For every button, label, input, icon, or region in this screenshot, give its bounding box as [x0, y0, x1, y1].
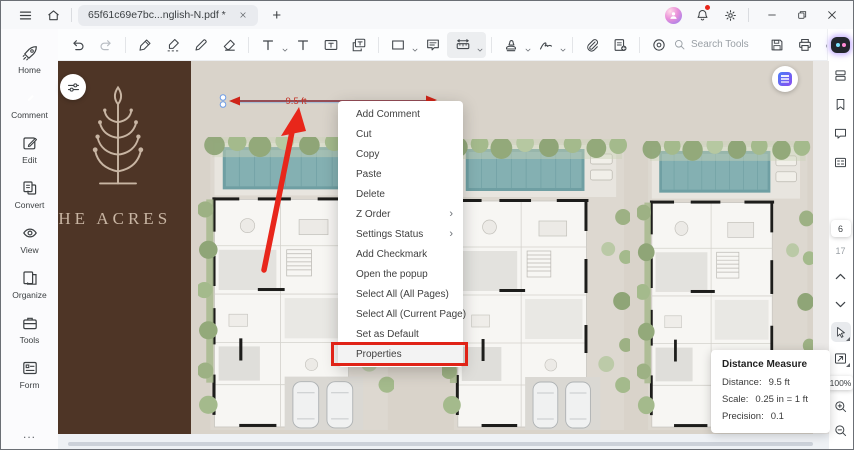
shape-tool[interactable] [384, 33, 419, 57]
signature-tool[interactable] [532, 33, 567, 57]
comment-icon [21, 89, 39, 107]
menu-item-z-order[interactable]: Z Order› [338, 204, 463, 224]
annotation-toolbar: Search Tools [58, 29, 829, 61]
menu-item-settings-status[interactable]: Settings Status› [338, 224, 463, 244]
new-tab-button[interactable]: + [268, 7, 286, 24]
menu-item-open-the-popup[interactable]: Open the popup [338, 264, 463, 284]
divider [748, 8, 749, 22]
chevron-down-icon[interactable] [411, 41, 419, 49]
convert-icon [21, 179, 39, 197]
measure-panel-title: Distance Measure [722, 359, 819, 370]
sidebar-item-form[interactable]: Form [4, 352, 56, 397]
form-icon [21, 359, 39, 377]
menu-item-set-as-default[interactable]: Set as Default [338, 324, 463, 344]
measure-tool-active[interactable] [447, 32, 486, 58]
horizontal-scrollbar[interactable] [68, 442, 813, 446]
add-file-comment-tool[interactable] [608, 33, 632, 57]
briefcase-icon [21, 314, 39, 332]
distance-measure-panel: Distance Measure Distance:9.5 ft Scale:0… [711, 350, 830, 433]
settings-gear-icon[interactable] [721, 6, 739, 24]
botanical-ornament [72, 73, 164, 193]
pages-icon [21, 269, 39, 287]
user-avatar[interactable] [665, 7, 682, 24]
highlight-tool[interactable] [133, 33, 157, 57]
stamp-tool[interactable] [497, 33, 532, 57]
titlebar: 65f61c69e7bc...nglish-N.pdf * + [1, 1, 853, 29]
close-button[interactable] [821, 6, 843, 24]
current-page-indicator[interactable]: 6 [831, 220, 851, 237]
annotation-options-button[interactable] [60, 74, 86, 100]
rocket-icon [21, 44, 39, 62]
underline-tool[interactable] [254, 33, 289, 57]
redo-button[interactable] [94, 33, 118, 57]
divider [71, 8, 72, 22]
menu-item-add-comment[interactable]: Add Comment [338, 104, 463, 124]
chevron-down-icon[interactable] [524, 41, 532, 49]
menu-item-select-all-current-page[interactable]: Select All (Current Page) [338, 304, 463, 324]
add-text-tool[interactable] [291, 33, 315, 57]
attachment-tool[interactable] [580, 33, 604, 57]
menu-item-select-all-all-pages[interactable]: Select All (All Pages) [338, 284, 463, 304]
eraser-tool[interactable] [217, 33, 241, 57]
eye-icon [21, 224, 39, 242]
ai-doc-icon [778, 72, 792, 86]
zoom-in-button[interactable] [831, 396, 851, 416]
chevron-down-icon[interactable] [559, 41, 567, 49]
show-annotations-tool[interactable] [647, 33, 671, 57]
sidebar-item-organize[interactable]: Organize [4, 262, 56, 307]
comments-panel-icon[interactable] [831, 123, 851, 143]
undo-button[interactable] [66, 33, 90, 57]
menu-item-delete[interactable]: Delete [338, 184, 463, 204]
sidebar-more-button[interactable]: ... [23, 427, 36, 441]
search-icon [673, 38, 686, 51]
sidebar-item-edit[interactable]: Edit [4, 127, 56, 172]
total-pages-label: 17 [835, 246, 845, 256]
print-button[interactable] [793, 33, 817, 57]
search-tools[interactable]: Search Tools [673, 38, 749, 51]
chevron-down-icon[interactable] [281, 41, 289, 49]
text-box-tool[interactable] [319, 33, 343, 57]
select-tool-button[interactable] [831, 322, 851, 342]
menu-item-properties[interactable]: Properties [338, 344, 463, 364]
tab-title: 65f61c69e7bc...nglish-N.pdf * [88, 9, 226, 21]
submenu-arrow-icon: › [449, 208, 453, 220]
text-callout-tool[interactable] [347, 33, 371, 57]
edit-icon [21, 134, 39, 152]
menu-icon[interactable] [16, 6, 34, 24]
fields-panel-icon[interactable] [831, 152, 851, 172]
sidebar-item-home[interactable]: Home [4, 37, 56, 82]
menu-item-paste[interactable]: Paste [338, 164, 463, 184]
sidebar-item-convert[interactable]: Convert [4, 172, 56, 217]
pencil-tool[interactable] [189, 33, 213, 57]
document-tab[interactable]: 65f61c69e7bc...nglish-N.pdf * [78, 5, 258, 26]
brand-title: THE ACRES [58, 209, 171, 229]
search-tools-label: Search Tools [691, 39, 749, 50]
bookmarks-panel-icon[interactable] [831, 94, 851, 114]
horizontal-scroll-area [58, 434, 829, 450]
minimize-button[interactable] [761, 6, 783, 24]
previous-page-button[interactable] [831, 266, 851, 286]
sliders-icon [66, 80, 81, 95]
home-tab-icon[interactable] [44, 6, 62, 24]
measure-row-precision: Precision:0.1 [722, 411, 819, 422]
left-sidebar: Home Comment Edit Convert View Organize … [1, 29, 58, 450]
save-button[interactable] [765, 33, 789, 57]
zoom-level-indicator[interactable]: 100% [828, 376, 854, 390]
maximize-button[interactable] [791, 6, 813, 24]
menu-item-copy[interactable]: Copy [338, 144, 463, 164]
zoom-out-button[interactable] [831, 420, 851, 440]
panel-more-button[interactable] [831, 176, 851, 196]
brand-panel: THE ACRES [58, 61, 191, 434]
fit-view-button[interactable] [831, 348, 851, 368]
sidebar-item-view[interactable]: View [4, 217, 56, 262]
sidebar-item-tools[interactable]: Tools [4, 307, 56, 352]
notification-dot [705, 5, 710, 10]
menu-item-cut[interactable]: Cut [338, 124, 463, 144]
next-page-button[interactable] [831, 294, 851, 314]
chevron-down-icon[interactable] [476, 41, 484, 49]
measure-row-scale: Scale:0.25 in = 1 ft [722, 394, 819, 405]
pdf-editor-window: 65f61c69e7bc...nglish-N.pdf * + [0, 0, 854, 450]
notifications-bell-icon[interactable] [693, 6, 711, 24]
floor-plan-2 [442, 139, 630, 434]
thumbnails-panel-icon[interactable] [831, 65, 851, 85]
measure-row-distance: Distance:9.5 ft [722, 377, 819, 388]
ai-assistant-button[interactable] [831, 37, 850, 53]
context-menu: Add Comment Cut Copy Paste Delete Z Orde… [338, 101, 463, 367]
sidebar-item-comment[interactable]: Comment [4, 82, 56, 127]
submenu-arrow-icon: › [449, 228, 453, 240]
ai-summary-button[interactable] [772, 66, 798, 92]
right-sidebar: 6 17 100% [827, 29, 853, 450]
menu-item-add-checkmark[interactable]: Add Checkmark [338, 244, 463, 264]
tab-close-icon[interactable] [236, 8, 250, 22]
area-highlight-tool[interactable] [161, 33, 185, 57]
sticky-note-tool[interactable] [421, 33, 445, 57]
